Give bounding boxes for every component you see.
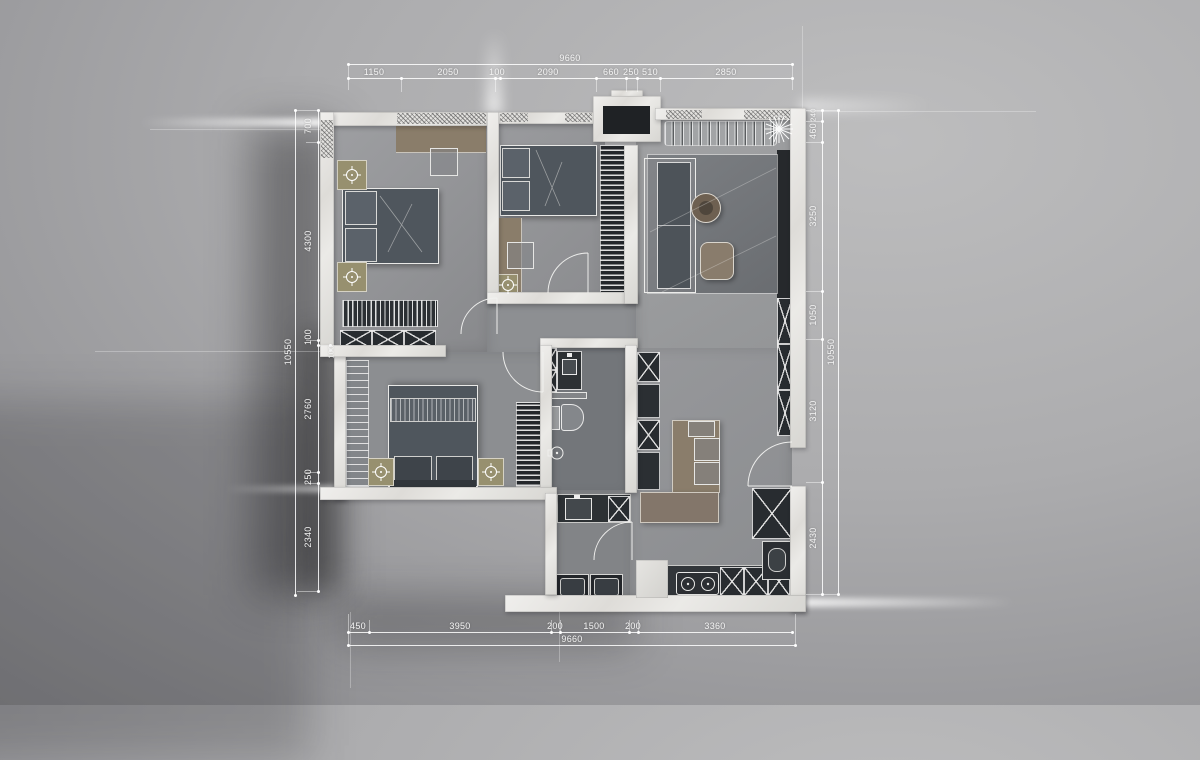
dim-label: 2430: [808, 527, 818, 548]
dim-label: 1500: [583, 621, 604, 631]
side-table: [430, 148, 458, 176]
wardrobe-shelves: [346, 360, 369, 487]
pillow: [436, 456, 473, 483]
ambient-shadow-bottom-left: [0, 400, 310, 760]
dim-label: 100: [303, 329, 313, 345]
dim-tick: [596, 80, 597, 92]
guide-line-left-1: [150, 129, 322, 130]
dim-tick: [297, 110, 318, 111]
cooktop: [676, 572, 719, 595]
washer-drum: [560, 578, 585, 596]
dim-label: 3120: [808, 400, 818, 421]
dim-label: 200: [625, 621, 641, 631]
pillow: [394, 456, 432, 483]
dim-dot: [499, 77, 502, 80]
dim-tick: [348, 614, 349, 646]
dim-bottom-overall-line: [348, 645, 795, 646]
window-hatch: [565, 113, 592, 122]
desk: [507, 242, 534, 269]
dim-label: 2850: [715, 67, 736, 77]
utility-sink: [565, 498, 592, 520]
dim-tick: [637, 80, 638, 92]
dim-tick: [401, 80, 402, 92]
base-cabinet-hatched: [720, 567, 744, 596]
corner-pantry-hatched: [752, 488, 792, 539]
nightstand-lamp: [337, 262, 367, 292]
shaft-cavity: [603, 106, 650, 134]
dim-tick: [348, 66, 349, 90]
floor-plan-canvas: { "dims": { "top": {"overall": "9660", "…: [0, 0, 1200, 705]
dim-label: 1050: [808, 304, 818, 325]
dim-top-overall-line: [348, 64, 792, 65]
dim-left-overall-line: [295, 110, 296, 595]
wall-hall-top: [487, 292, 638, 304]
wall-bath-right: [625, 345, 637, 493]
dim-label: 3250: [808, 205, 818, 226]
nightstand-lamp: [478, 458, 504, 486]
dim-tick: [626, 80, 627, 92]
pillow: [345, 228, 377, 262]
faucet: [574, 495, 580, 499]
guide-line-right-1: [806, 111, 1036, 112]
dim-dot: [791, 631, 794, 634]
wardrobe-right-strip: [777, 150, 791, 300]
dim-tick: [806, 291, 822, 292]
dining-chair: [694, 462, 720, 485]
window-hatch: [397, 113, 486, 124]
pillow: [502, 181, 530, 211]
dim-tick: [369, 620, 370, 632]
dim-label: 700: [303, 118, 313, 134]
bed-blanket-stripes: [390, 398, 476, 422]
dim-label: 240: [809, 108, 818, 121]
slatted-partition: [600, 145, 625, 297]
dim-dot: [294, 594, 297, 597]
dim-label: 460: [808, 123, 818, 139]
dim-left-segment-line: [318, 110, 319, 591]
pouf: [700, 242, 734, 280]
tall-cabinet-hatched: [637, 352, 660, 382]
light-streak-bottom-right: [795, 598, 1015, 607]
sofa-cushion-divider: [657, 225, 691, 226]
dim-tick: [806, 482, 822, 483]
dim-label: 660: [603, 67, 619, 77]
dim-tick: [297, 591, 318, 592]
tall-cabinet: [637, 452, 660, 490]
wall-right-lower: [790, 486, 806, 612]
tall-cabinet-hatched: [637, 420, 660, 450]
dim-label: 3950: [449, 621, 470, 631]
window-hatch: [666, 110, 702, 119]
bench-radiator: [342, 300, 438, 327]
dim-label: 3360: [704, 621, 725, 631]
nightstand-lamp: [337, 160, 367, 190]
window-hatch: [744, 110, 790, 119]
wall-bedroom-divider: [487, 112, 499, 304]
dining-chair: [694, 438, 720, 461]
wall-master-top: [320, 345, 446, 357]
cabinet-sink: [768, 548, 786, 572]
dim-tick: [806, 339, 822, 340]
dim-label-left-overall: 10550: [283, 339, 293, 366]
dining-chair: [688, 421, 715, 437]
dim-right-overall-line: [838, 110, 839, 594]
wall-master-bottom: [320, 487, 557, 500]
cabinet-hatched: [608, 496, 630, 522]
dim-label-top-overall: 9660: [559, 53, 580, 63]
dim-label: 100: [327, 345, 336, 358]
dim-tick: [795, 614, 796, 646]
dim-bottom-segment-line: [348, 632, 792, 633]
dim-label: 250: [623, 67, 639, 77]
tall-cabinet: [637, 384, 660, 418]
dim-label: 2340: [303, 526, 313, 547]
pillow: [502, 148, 530, 178]
dim-label: 2760: [303, 398, 313, 419]
dim-label: 2050: [437, 67, 458, 77]
wall-left-lower: [334, 352, 346, 500]
dim-label-bottom-overall: 9660: [561, 634, 582, 644]
dim-label: 200: [547, 621, 563, 631]
dim-label-right-overall: 10550: [826, 339, 836, 366]
sink-basin: [562, 359, 577, 375]
dim-label: 1150: [364, 67, 385, 77]
wall-living-left: [624, 145, 638, 304]
toilet-tank: [551, 406, 560, 430]
curtain-row: [664, 121, 777, 146]
wall-bath-top: [540, 338, 638, 348]
dim-tick: [306, 142, 318, 143]
coffee-table-center: [699, 201, 713, 215]
dim-tick: [806, 594, 839, 595]
dim-label: 510: [642, 67, 658, 77]
dryer-drum: [594, 578, 619, 596]
dining-table-horizontal: [640, 492, 719, 523]
window-hatch: [321, 120, 333, 158]
guide-line-right-2: [802, 26, 803, 108]
window-hatch: [500, 113, 528, 122]
wall-kitchen-divider: [636, 560, 668, 598]
dim-tick: [806, 142, 822, 143]
dim-top-segment-line: [348, 78, 792, 79]
bath-shelf: [551, 392, 587, 399]
dim-label: 450: [350, 621, 366, 631]
dim-tick: [792, 66, 793, 90]
faucet: [567, 353, 572, 357]
dim-tick: [660, 80, 661, 92]
wall-right-upper: [790, 108, 806, 448]
nightstand-lamp: [368, 458, 394, 486]
dim-right-segment-line: [822, 110, 823, 594]
dim-label: 250: [303, 469, 313, 485]
pillow: [345, 191, 377, 225]
wall-utility-left: [545, 493, 557, 595]
wall-bath-left: [540, 345, 552, 493]
dim-label: 2090: [537, 67, 558, 77]
dim-label: 100: [489, 67, 505, 77]
dim-tick: [495, 80, 496, 92]
dim-label: 4300: [303, 230, 313, 251]
